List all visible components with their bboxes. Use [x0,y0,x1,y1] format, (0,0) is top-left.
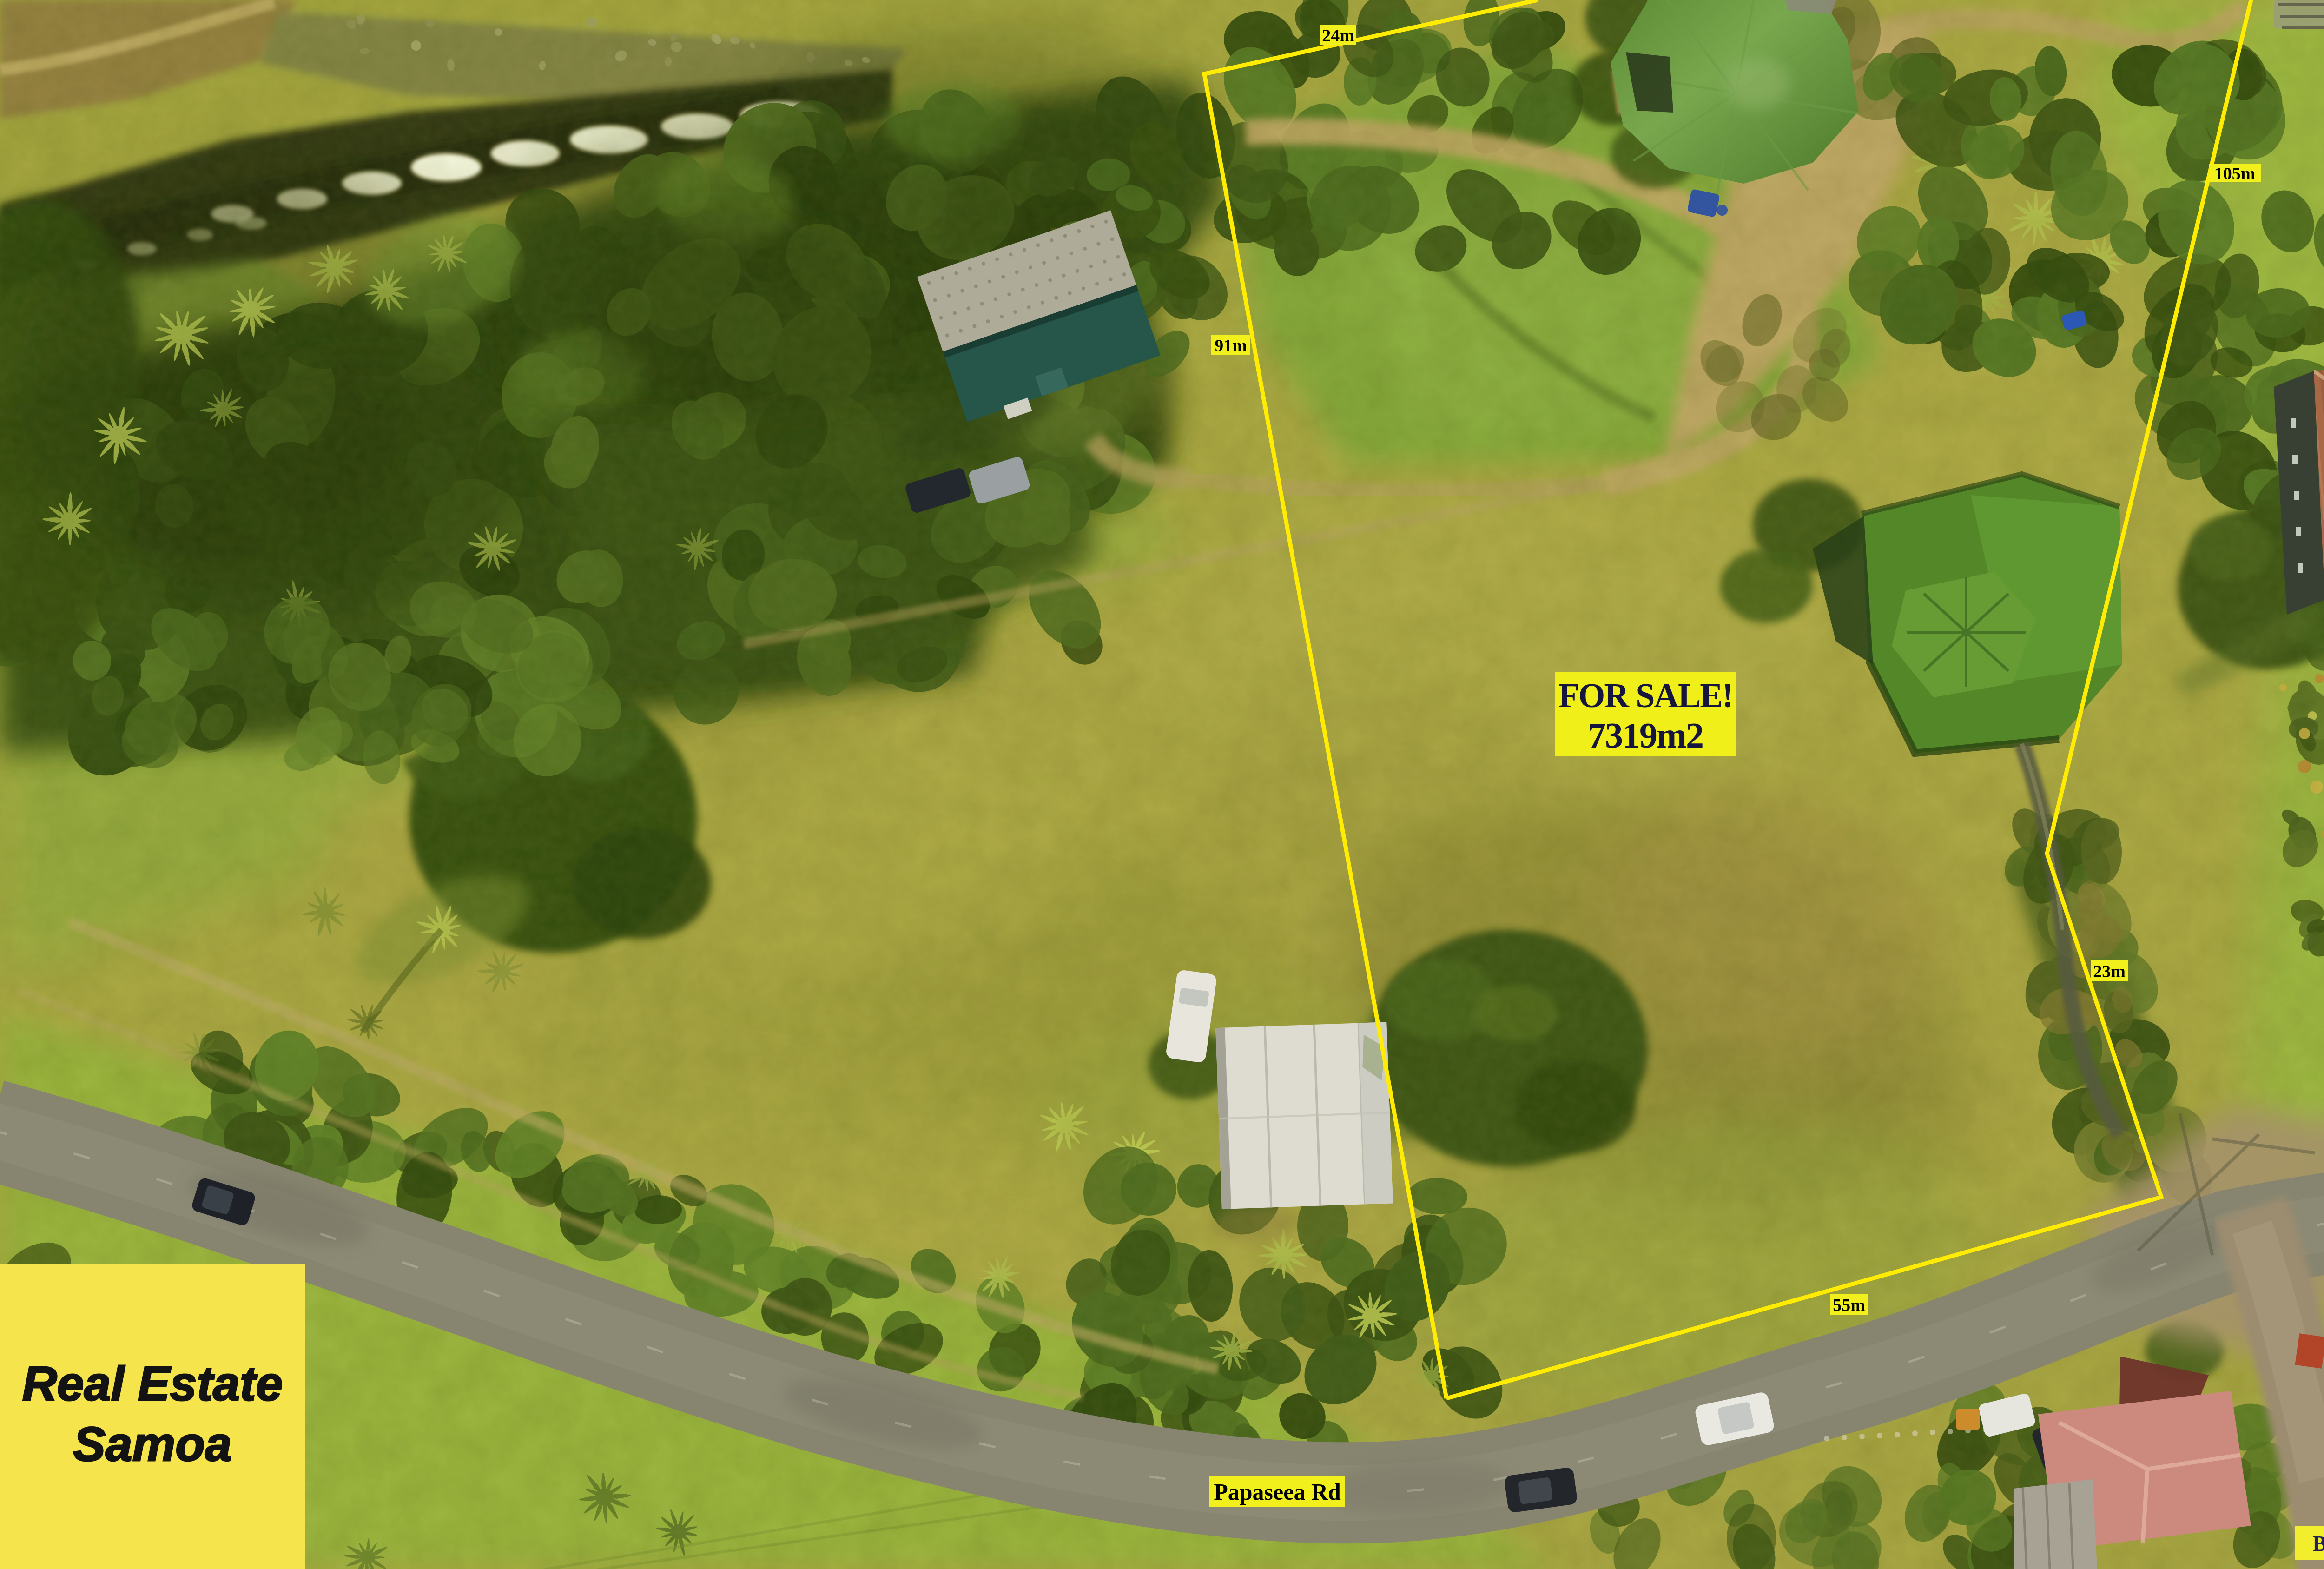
svg-text:23m: 23m [2093,961,2126,981]
svg-text:55m: 55m [1833,1295,1865,1315]
svg-text:7319m2: 7319m2 [1588,715,1703,755]
svg-text:105m: 105m [2214,164,2256,183]
svg-text:Boundary Lines are only for il: Boundary Lines are only for illustration… [2312,1532,2324,1556]
svg-text:24m: 24m [1322,26,1354,45]
svg-text:91m: 91m [1215,336,1247,355]
svg-text:Samoa: Samoa [73,1417,231,1471]
svg-text:FOR SALE!: FOR SALE! [1558,676,1733,715]
svg-text:Real Estate: Real Estate [22,1357,283,1410]
svg-text:Papaseea Rd: Papaseea Rd [1214,1479,1341,1505]
